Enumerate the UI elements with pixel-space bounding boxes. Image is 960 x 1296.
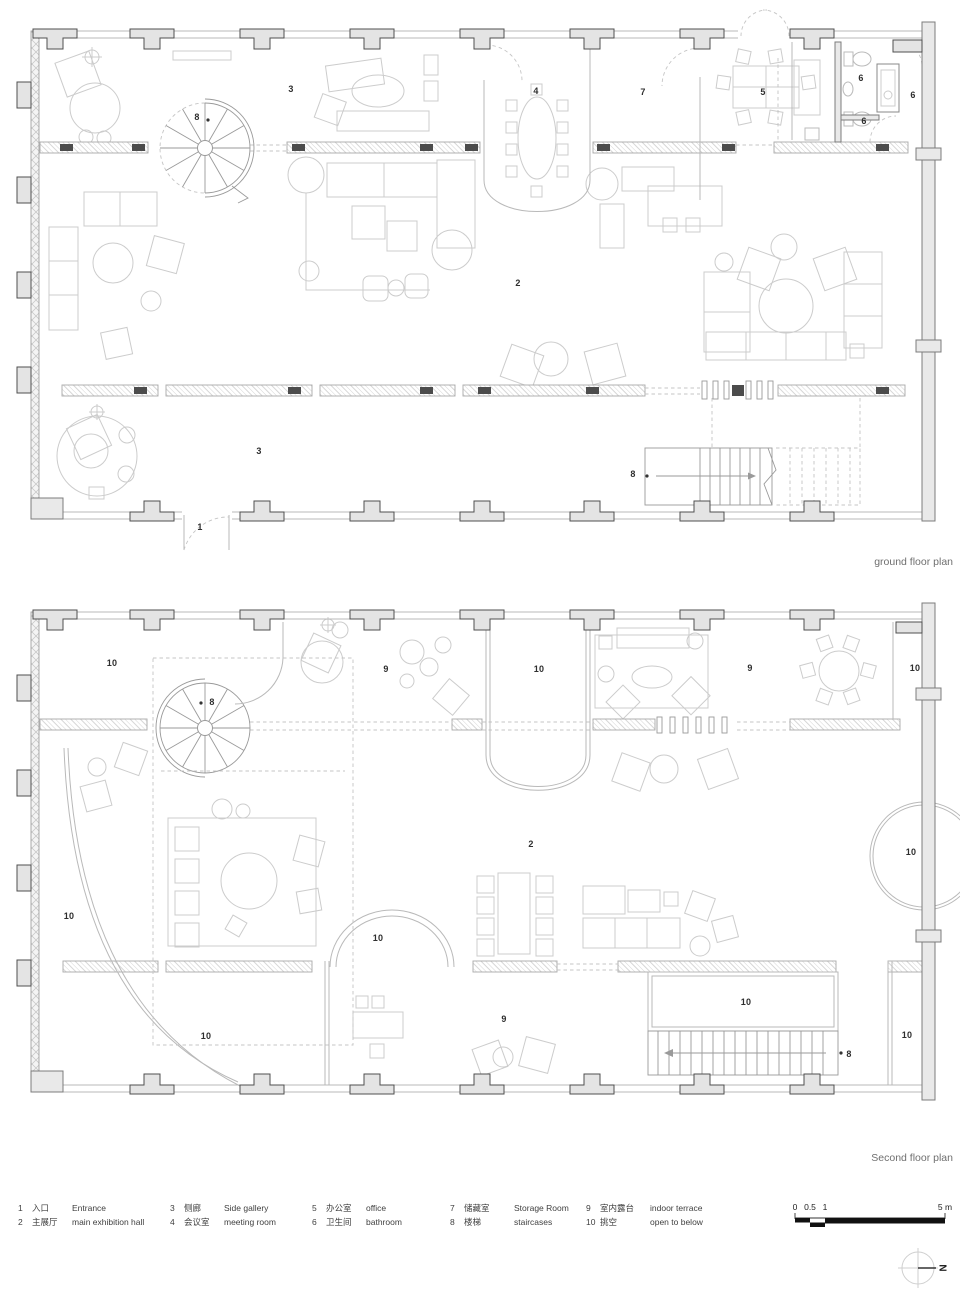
room-label-8: 8 — [209, 697, 214, 707]
legend-item: 6卫生间bathroom — [312, 1216, 402, 1230]
legend-item: 9室内露台indoor terrace — [586, 1202, 703, 1216]
room-label-2: 2 — [528, 839, 533, 849]
legend-item: 10挑空open to below — [586, 1216, 703, 1230]
room-label-6: 6 — [861, 116, 866, 126]
scale-bar-icon — [795, 1213, 945, 1227]
legend-item: 7储藏室Storage Room — [450, 1202, 569, 1216]
scale-tick: 0.5 — [804, 1202, 816, 1212]
room-label-9: 9 — [747, 663, 752, 673]
room-label-2: 2 — [515, 278, 520, 288]
ground-outer-walls — [17, 22, 941, 521]
legend-item: 5办公室office — [312, 1202, 402, 1216]
legend-item: 8楼梯staircases — [450, 1216, 569, 1230]
ground-floor-title: ground floor plan — [874, 556, 953, 568]
plan-drawing — [0, 0, 960, 1296]
room-label-3: 3 — [288, 84, 293, 94]
room-label-5: 5 — [760, 87, 765, 97]
room-label-9: 9 — [383, 664, 388, 674]
ground-partitions — [40, 10, 922, 550]
room-label-10: 10 — [201, 1031, 211, 1041]
legend-item: 3侧廊Side gallery — [170, 1202, 276, 1216]
room-label-1: 1 — [197, 522, 202, 532]
floor-plan-sheet: 384756662318108910910210101010910810 gro… — [0, 0, 960, 1296]
scale-tick: 5 m — [938, 1202, 952, 1212]
legend-item: 1入口Entrance — [18, 1202, 144, 1216]
room-label-6: 6 — [910, 90, 915, 100]
second-floor-plan — [17, 603, 960, 1100]
north-arrow-icon — [898, 1248, 938, 1288]
legend-item: 4会议室meeting room — [170, 1216, 276, 1230]
legend-column: 3侧廊Side gallery4会议室meeting room — [170, 1202, 276, 1230]
legend-column: 5办公室office6卫生间bathroom — [312, 1202, 402, 1230]
legend-item: 2主展厅main exhibition hall — [18, 1216, 144, 1230]
scale-tick: 1 — [823, 1202, 828, 1212]
room-label-10: 10 — [373, 933, 383, 943]
legend-column: 9室内露台indoor terrace10挑空open to below — [586, 1202, 703, 1230]
room-label-10: 10 — [534, 664, 544, 674]
room-label-8: 8 — [846, 1049, 851, 1059]
room-label-10: 10 — [902, 1030, 912, 1040]
second-partitions — [40, 622, 922, 1086]
room-label-10: 10 — [910, 663, 920, 673]
room-label-10: 10 — [107, 658, 117, 668]
room-label-6: 6 — [858, 73, 863, 83]
legend-column: 1入口Entrance2主展厅main exhibition hall — [18, 1202, 144, 1230]
room-label-10: 10 — [64, 911, 74, 921]
scale-tick: 0 — [793, 1202, 798, 1212]
room-label-9: 9 — [501, 1014, 506, 1024]
legend-column: 7储藏室Storage Room8楼梯staircases — [450, 1202, 569, 1230]
second-floor-title: Second floor plan — [871, 1152, 953, 1164]
north-label: N — [937, 1264, 948, 1271]
room-label-8: 8 — [194, 112, 199, 122]
room-label-4: 4 — [533, 86, 538, 96]
room-label-8: 8 — [630, 469, 635, 479]
room-label-10: 10 — [906, 847, 916, 857]
ground-floor-plan — [17, 10, 941, 550]
second-furniture — [80, 617, 960, 1076]
room-label-7: 7 — [640, 87, 645, 97]
room-label-10: 10 — [741, 997, 751, 1007]
ground-furniture — [49, 47, 882, 499]
room-label-3: 3 — [256, 446, 261, 456]
